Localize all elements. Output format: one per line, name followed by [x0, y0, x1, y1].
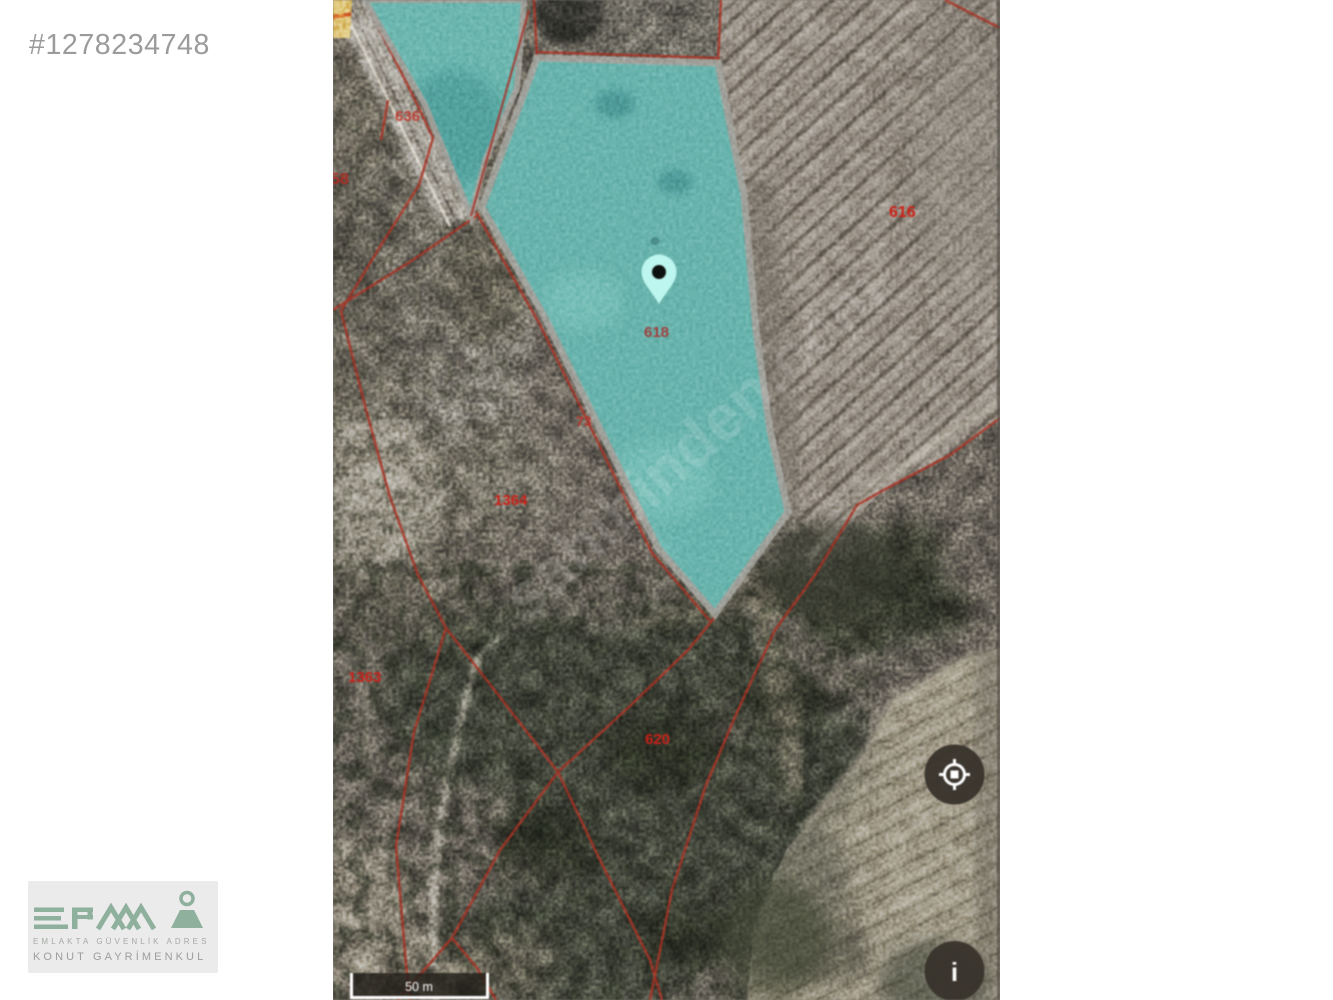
svg-text:616: 616 [889, 204, 916, 221]
svg-text:618: 618 [644, 324, 669, 341]
svg-text:73: 73 [576, 413, 592, 429]
svg-text:i: i [951, 957, 958, 987]
svg-text:620: 620 [645, 731, 670, 748]
svg-text:1364: 1364 [494, 492, 528, 509]
svg-text:KONUT GAYRİMENKUL: KONUT GAYRİMENKUL [33, 950, 206, 963]
svg-text:EMLAKTA GÜVENLİK ADRES: EMLAKTA GÜVENLİK ADRES [33, 937, 210, 946]
svg-text:58: 58 [333, 171, 349, 188]
svg-text:50 m: 50 m [405, 980, 433, 994]
svg-text:1363: 1363 [348, 669, 381, 686]
svg-text:636: 636 [395, 108, 420, 125]
